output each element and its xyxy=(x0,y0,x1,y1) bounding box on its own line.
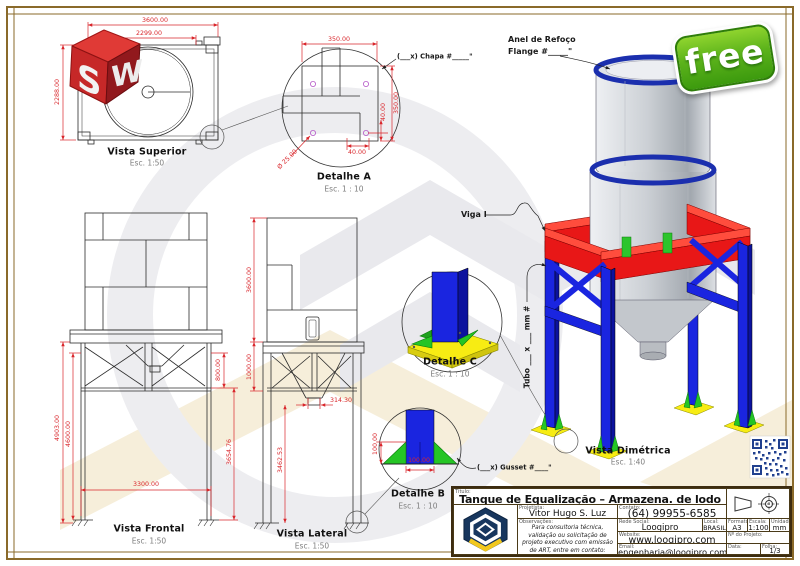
view-title: Vista Frontal xyxy=(113,524,184,534)
company-logo-cell xyxy=(453,504,518,555)
title-block: Título: Tanque de Equalização – Armazena… xyxy=(451,486,792,557)
loogipro-logo-icon xyxy=(454,505,517,554)
dim-label: 3600.00 xyxy=(142,18,168,24)
email-value: engenharia@loogipro.com xyxy=(618,547,726,556)
field-projetista: Projetista: Vitor Hugo S. Luz xyxy=(517,504,618,519)
vista-dimetrica-drawing xyxy=(531,57,764,459)
chapa-callout: (___x) Chapa #_____" xyxy=(397,54,473,61)
dim-label: 4903.00 xyxy=(55,415,61,441)
dim-label: 314.30 xyxy=(330,398,352,404)
anel-label-line1: Anel de Refoço xyxy=(508,36,576,44)
view-scale: Esc. 1:50 xyxy=(132,537,166,545)
free-badge-label: free xyxy=(682,31,767,82)
anel-label-line2: Flange #_____" xyxy=(508,48,572,56)
field-unidade: Unidade: mm xyxy=(769,518,790,532)
dim-label: 800.00 xyxy=(216,359,222,381)
view-scale: Esc. 1:50 xyxy=(295,542,329,550)
field-formato: Formato: A3 xyxy=(726,518,748,532)
view-scale: Esc. 1:50 xyxy=(130,159,164,167)
dim-label: 350.00 xyxy=(394,92,400,114)
drawing-sheet: S W 3600.00 2299.00 2288.00 350.00 350.0… xyxy=(0,0,800,566)
field-observacoes: Observações: Para consultoria técnica, v… xyxy=(517,518,618,555)
view-scale: Esc. 1 : 10 xyxy=(324,185,363,193)
gusset-callout: (___x) Gusset #____" xyxy=(477,465,552,472)
chapa-leader xyxy=(382,59,396,69)
dim-label: 4600.00 xyxy=(66,421,72,447)
view-scale: Esc. 1 : 10 xyxy=(430,370,469,378)
dim-label: 3600.00 xyxy=(247,267,253,293)
view-scale: Esc. 1:40 xyxy=(611,458,645,466)
view-title: Detalhe B xyxy=(391,489,445,499)
view-title: Vista Lateral xyxy=(277,529,348,539)
solidworks-letter-w: W xyxy=(111,53,143,94)
dim-label: 1000.00 xyxy=(247,354,253,380)
dim-label: 40.00 xyxy=(381,103,387,121)
field-escala: Escala: 1:100 xyxy=(747,518,770,532)
view-title: Vista Superior xyxy=(107,147,186,157)
dim-label: 40.00 xyxy=(348,150,366,156)
projection-symbol-cell xyxy=(726,488,790,519)
dim-label: 100.00 xyxy=(408,458,430,464)
first-angle-projection-icon xyxy=(727,489,789,518)
dim-label: 2299.00 xyxy=(136,31,162,37)
tubo-label: Tubo ___ x ___ mm # xyxy=(523,306,531,388)
solidworks-logo-icon: S W xyxy=(70,30,143,106)
field-email: Email: engenharia@loogipro.com xyxy=(617,543,727,555)
field-titulo: Título: Tanque de Equalização – Armazena… xyxy=(453,488,727,505)
view-scale: Esc. 1 : 10 xyxy=(398,502,437,510)
field-rede-social: Rede Social: Loogipro xyxy=(617,518,703,532)
field-projeto-label: Nº do Projeto: xyxy=(728,532,763,538)
dim-label: 3300.00 xyxy=(133,482,159,488)
field-pais: Local: BRASIL xyxy=(702,518,727,532)
view-title: Detalhe A xyxy=(317,172,371,182)
field-data: Data: xyxy=(726,543,761,555)
dim-label: 3654.76 xyxy=(227,439,233,465)
view-title: Vista Dimétrica xyxy=(585,446,670,456)
dim-label: 100.00 xyxy=(373,433,379,455)
field-contato: Contato: (64) 99955-6585 xyxy=(617,504,727,519)
view-title: Detalhe C xyxy=(423,357,477,367)
dim-label: 2288.00 xyxy=(55,79,61,105)
free-badge-inner: free xyxy=(673,23,777,93)
dim-label: 350.00 xyxy=(328,37,350,43)
qr-code xyxy=(750,436,790,478)
folha-value: 1/3 xyxy=(761,547,789,555)
dim-label: 3462.53 xyxy=(278,447,284,473)
field-folha: Folha: 1/3 xyxy=(760,543,790,555)
field-observacoes-label: Observações: xyxy=(519,519,553,525)
viga-label: Viga I xyxy=(461,211,487,219)
field-data-label: Data: xyxy=(728,544,742,550)
